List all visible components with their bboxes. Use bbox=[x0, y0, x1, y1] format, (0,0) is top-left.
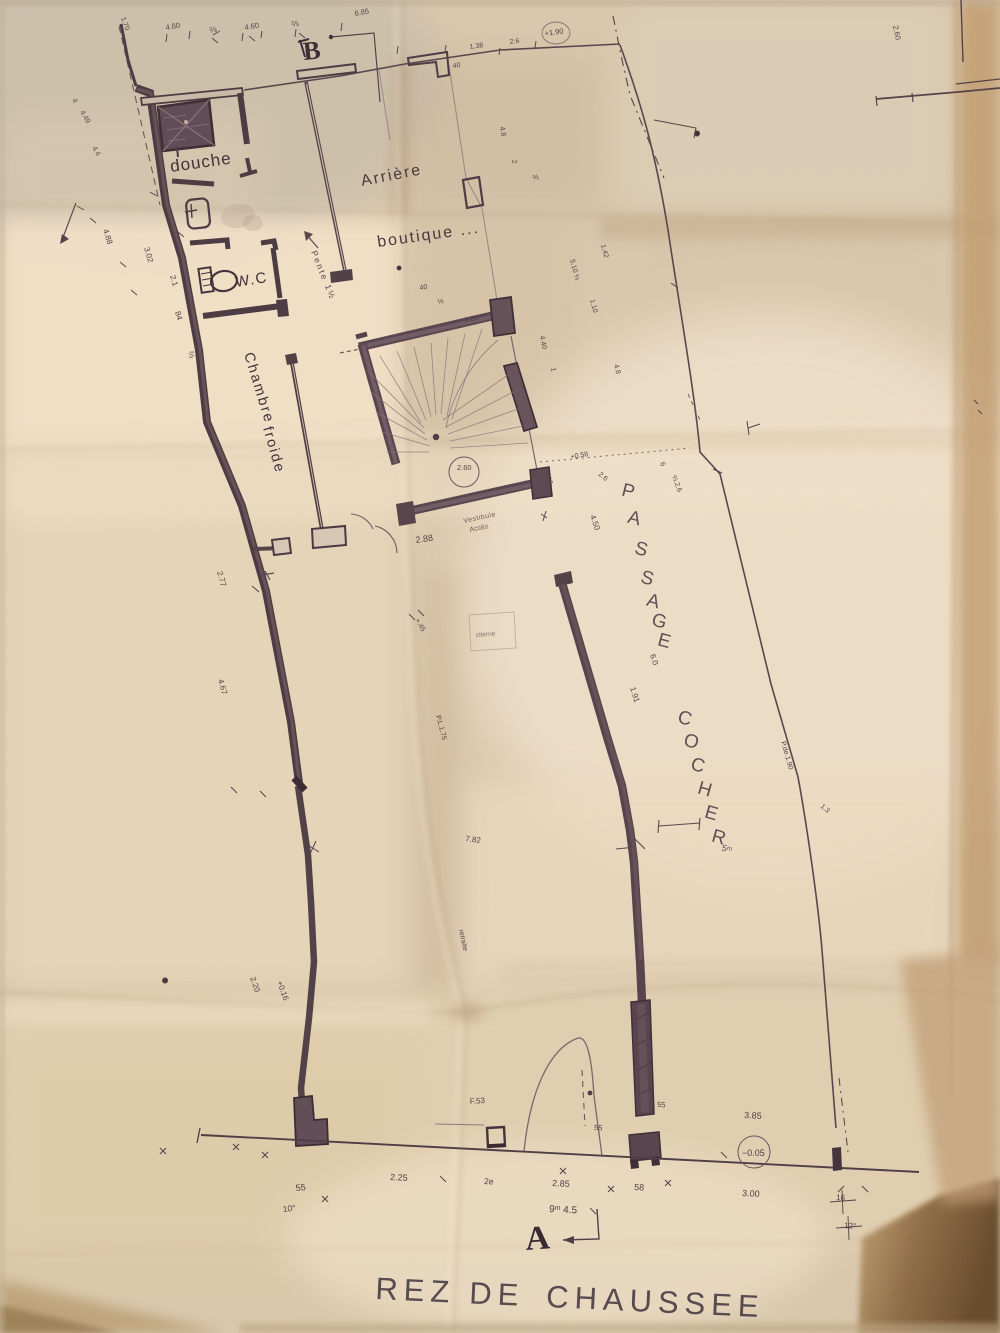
svg-text:REZ: REZ bbox=[375, 1271, 457, 1310]
svg-text:40: 40 bbox=[419, 284, 428, 292]
svg-text:3.00: 3.00 bbox=[742, 1188, 760, 1199]
svg-text:9ᵐ 4.5: 9ᵐ 4.5 bbox=[549, 1204, 578, 1216]
svg-text:2.85: 2.85 bbox=[552, 1178, 570, 1189]
svg-text:2e: 2e bbox=[484, 1176, 494, 1186]
svg-text:3.85: 3.85 bbox=[744, 1110, 762, 1121]
svg-text:58: 58 bbox=[634, 1182, 645, 1193]
svg-text:10°: 10° bbox=[282, 1203, 296, 1214]
svg-text:⅔: ⅔ bbox=[532, 174, 539, 182]
svg-text:40: 40 bbox=[452, 62, 461, 70]
svg-text:2.6: 2.6 bbox=[509, 38, 520, 46]
svg-text:DE: DE bbox=[469, 1275, 526, 1313]
svg-text:A: A bbox=[524, 1219, 552, 1258]
svg-text:55: 55 bbox=[657, 1100, 666, 1109]
svg-text:2.25: 2.25 bbox=[390, 1172, 408, 1183]
svg-text:12°: 12° bbox=[844, 1221, 857, 1231]
svg-text:2.60: 2.60 bbox=[457, 463, 472, 472]
svg-text:F.53: F.53 bbox=[470, 1096, 486, 1106]
svg-text:55: 55 bbox=[594, 1123, 603, 1132]
svg-text:citerne: citerne bbox=[476, 631, 496, 639]
svg-text:55: 55 bbox=[295, 1182, 306, 1193]
svg-text:−0.05: −0.05 bbox=[742, 1148, 765, 1158]
